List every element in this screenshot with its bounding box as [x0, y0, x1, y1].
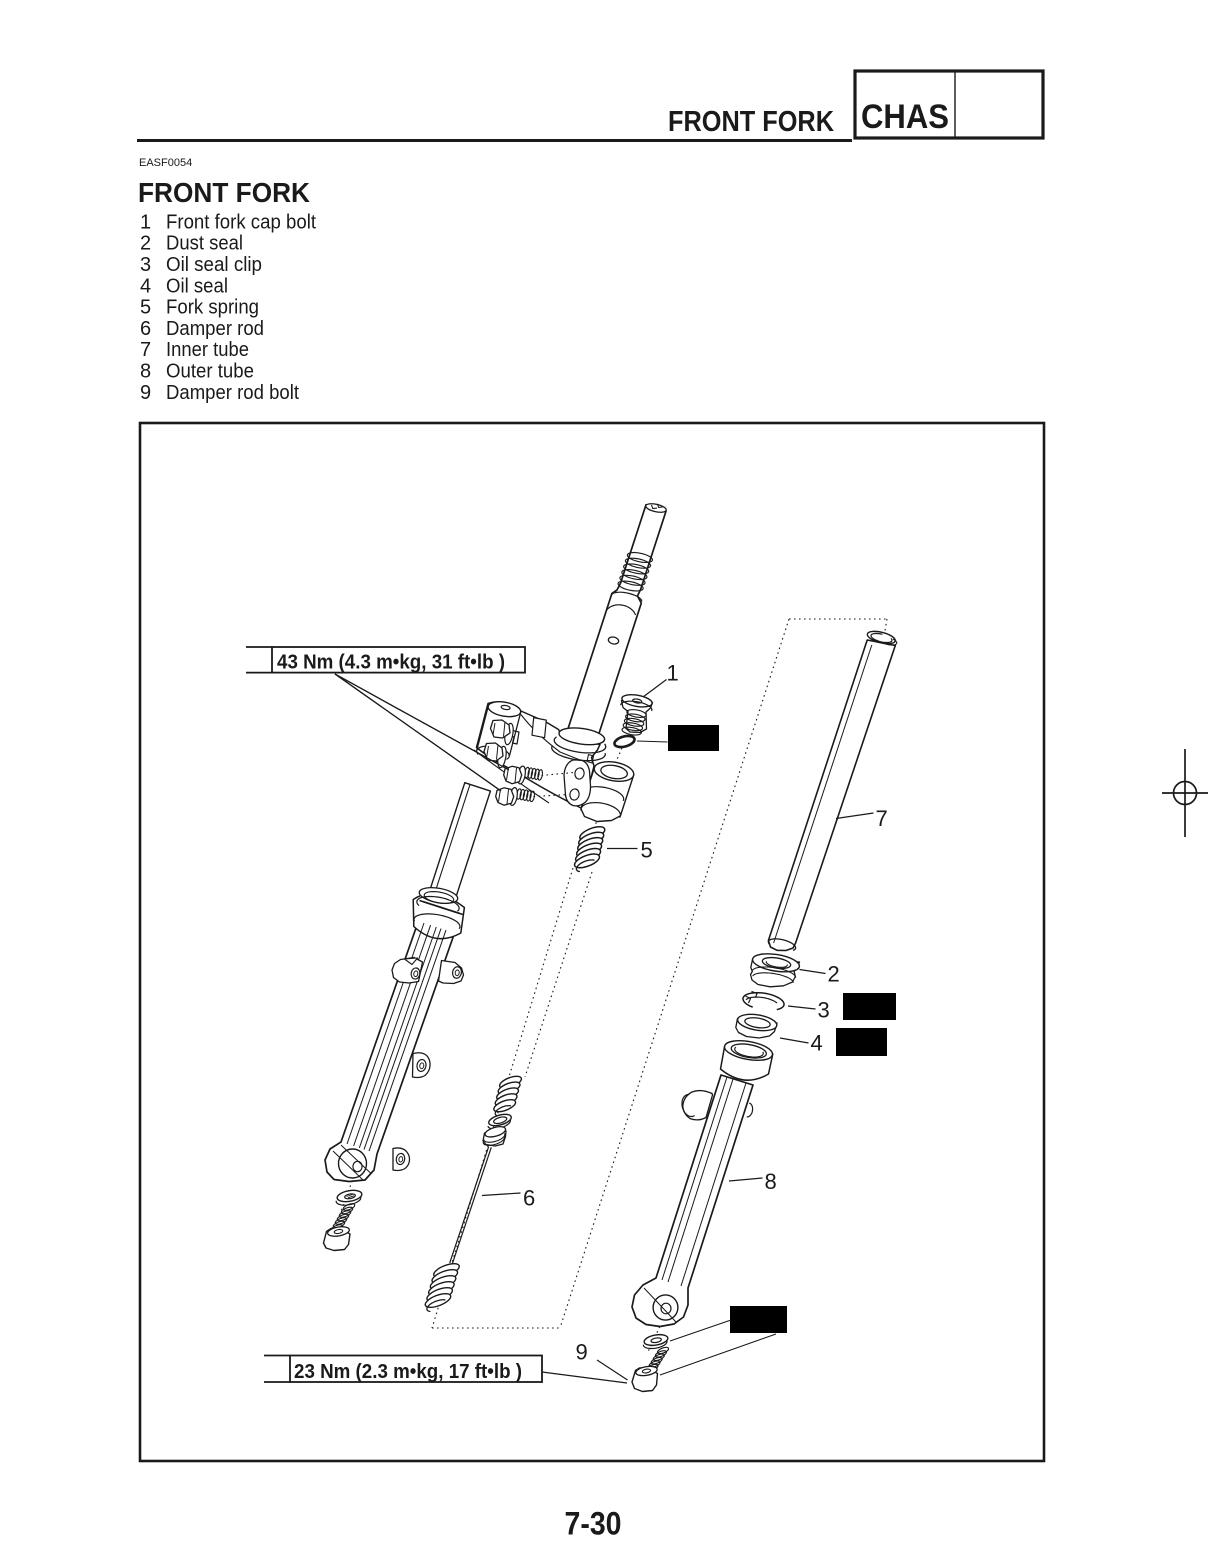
svg-text:7: 7 — [140, 339, 151, 361]
svg-text:2: 2 — [140, 233, 151, 255]
svg-text:Damper rod: Damper rod — [166, 318, 264, 340]
svg-text:23 Nm (2.3 m•kg, 17 ft•lb ): 23 Nm (2.3 m•kg, 17 ft•lb ) — [294, 1361, 522, 1383]
svg-text:1: 1 — [667, 661, 679, 686]
svg-text:Inner tube: Inner tube — [166, 339, 249, 361]
svg-text:7-30: 7-30 — [565, 1506, 622, 1542]
svg-text:CHAS: CHAS — [861, 98, 949, 136]
svg-text:6: 6 — [523, 1186, 535, 1211]
svg-text:43 Nm (4.3 m•kg, 31 ft•lb ): 43 Nm (4.3 m•kg, 31 ft•lb ) — [277, 652, 505, 674]
svg-text:EASF0054: EASF0054 — [139, 157, 192, 169]
svg-text:5: 5 — [140, 297, 151, 319]
svg-text:2: 2 — [828, 962, 840, 987]
svg-text:Oil seal: Oil seal — [166, 275, 228, 297]
svg-text:1: 1 — [140, 211, 151, 233]
svg-text:4: 4 — [140, 275, 151, 297]
svg-text:Oil seal clip: Oil seal clip — [166, 254, 262, 276]
svg-text:6: 6 — [140, 318, 151, 340]
svg-text:Outer tube: Outer tube — [166, 361, 254, 383]
svg-text:Fork spring: Fork spring — [166, 297, 259, 319]
svg-text:7: 7 — [876, 806, 888, 831]
svg-text:FRONT FORK: FRONT FORK — [138, 177, 310, 208]
svg-text:9: 9 — [140, 382, 151, 404]
svg-text:5: 5 — [641, 838, 653, 863]
svg-text:8: 8 — [140, 361, 151, 383]
svg-text:Dust seal: Dust seal — [166, 233, 243, 255]
svg-text:8: 8 — [765, 1169, 777, 1194]
svg-text:9: 9 — [576, 1340, 588, 1365]
svg-text:Front fork cap bolt: Front fork cap bolt — [166, 211, 316, 233]
svg-text:4: 4 — [811, 1031, 823, 1056]
svg-text:3: 3 — [140, 254, 151, 276]
svg-text:FRONT FORK: FRONT FORK — [668, 106, 834, 138]
svg-text:3: 3 — [818, 998, 830, 1023]
svg-text:Damper rod bolt: Damper rod bolt — [166, 382, 299, 404]
